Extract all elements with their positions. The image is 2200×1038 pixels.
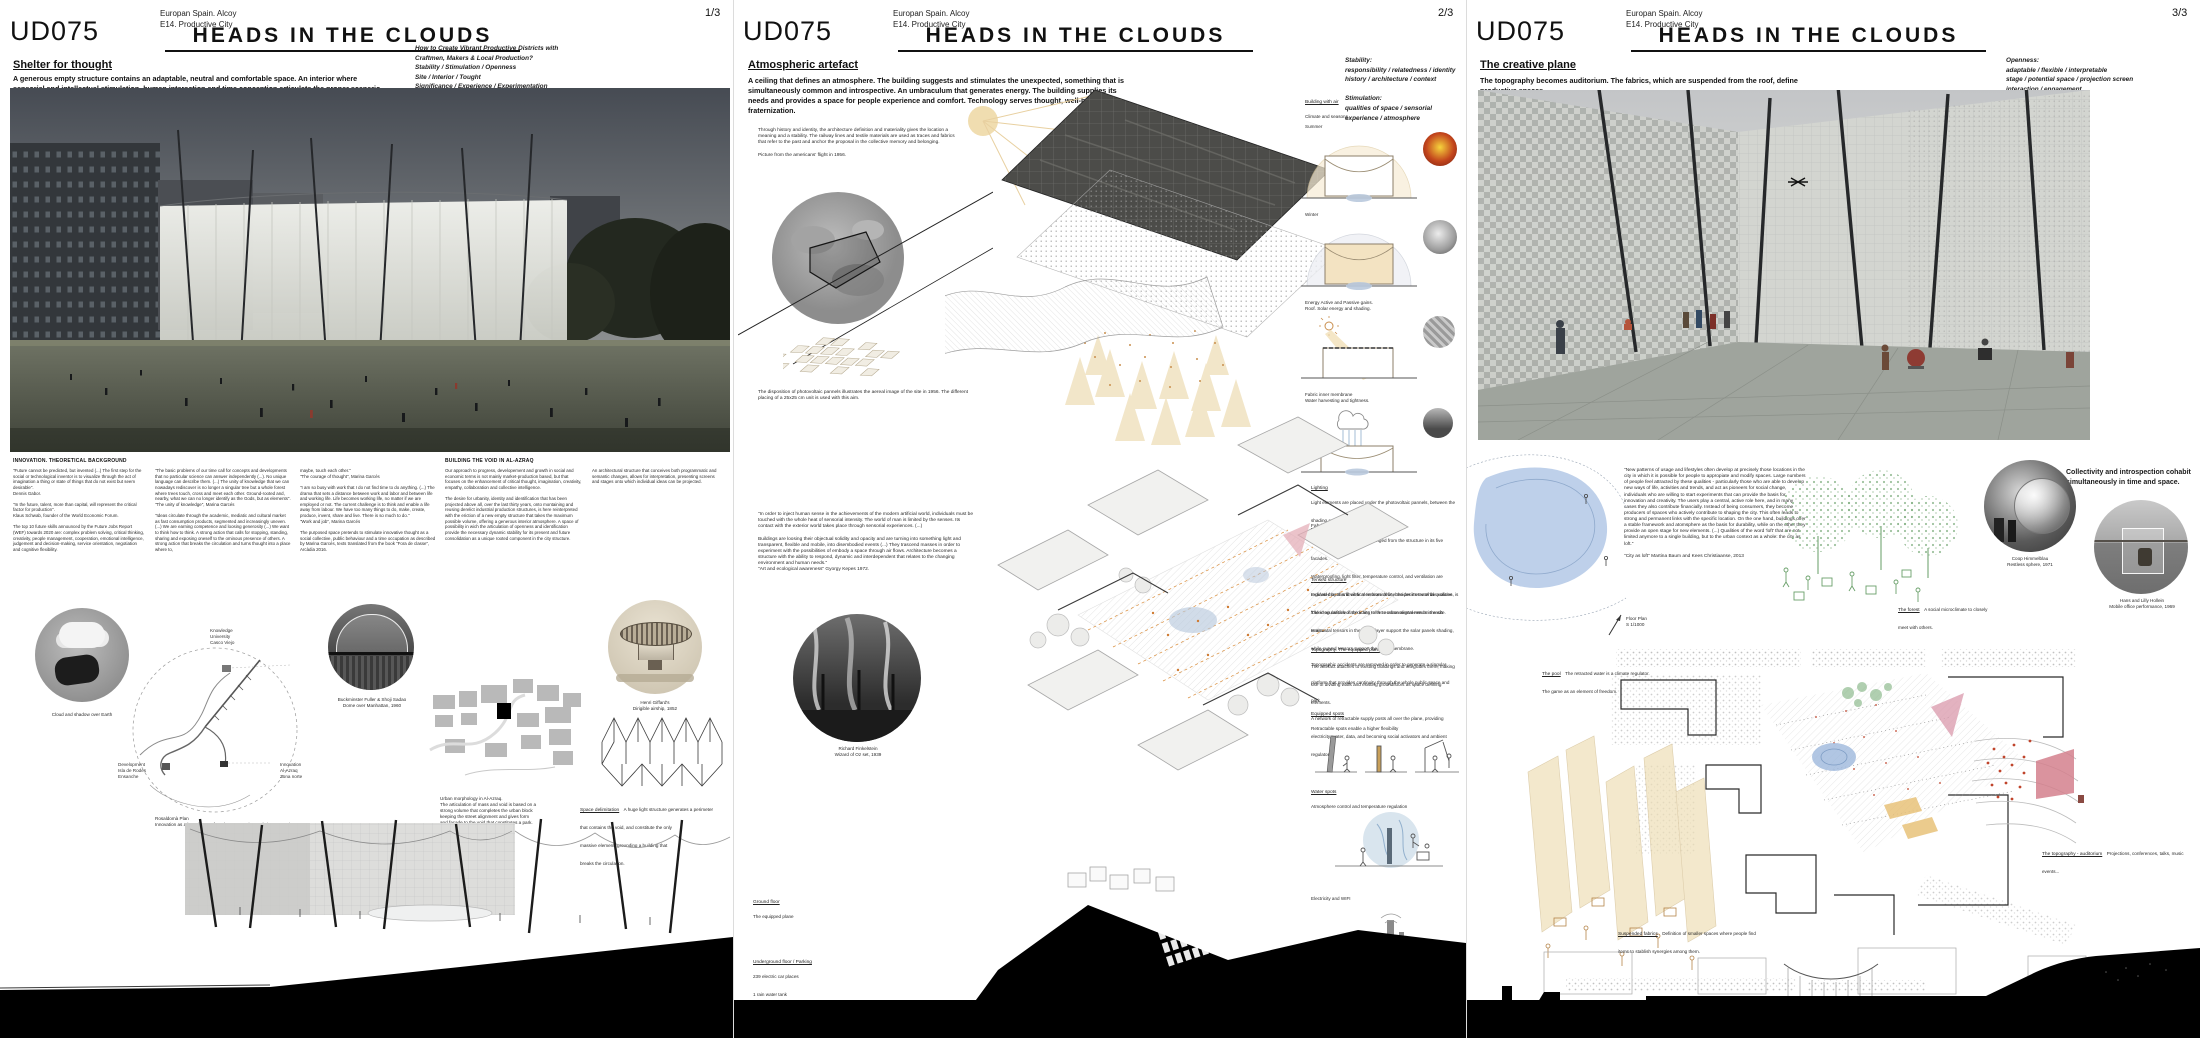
panel-1: Europan Spain. Alcoy E14. Productive Cit… [0,0,733,1038]
column-heading: INNOVATION. THEORETICAL BACKGROUND [13,458,145,464]
floor-plan-label: Floor Plan S 1/1000 [1626,616,1647,628]
panel-subtitle: Atmospheric artefact [748,59,858,71]
ground-floor-label: Ground floor The equipped plane [753,900,903,923]
team-code: UD075 [743,16,832,47]
city-strategy-map [110,635,320,815]
underground-floor-label: Underground floor / Parking 239 electric… [753,960,903,1001]
page-number: 1/3 [705,7,720,19]
plaza-render-image [1478,90,2090,440]
theory-column-1: INNOVATION. THEORETICAL BACKGROUND "Futu… [13,458,145,552]
panel-subtitle: The creative plane [1480,59,1576,71]
north-arrow-icon [1606,612,1624,638]
urban-morphology-map [425,655,590,795]
caption-head: Space delimitation [580,808,619,813]
pv-tiles-diagram [783,330,953,392]
page-number: 3/3 [2172,7,2187,19]
winter-label: Winter [1305,212,1318,218]
map-label-development: Development Isla de Rodes Ensanche [118,762,146,780]
theory-column-3: maybe, touch each other." "The courage o… [300,468,436,552]
theory-column-2: "The basic problems of our time call for… [155,468,291,552]
team-code: UD075 [1476,16,1565,47]
head: Building with air [1305,100,1348,105]
page-number: 2/3 [1438,7,1453,19]
collectivity-note: Collectivity and introspection cohabit s… [2066,468,2196,488]
panel-title: HEADS IN THE CLOUDS [898,24,1253,52]
head: Suspended fabrics [1618,932,1658,937]
pv-caption: The disposition of photovoltaic pannels … [758,390,968,402]
map-label-innovation: Innovation Al-Azraq Zona norte [280,762,302,780]
theory-column-5: An architectural structure that conceive… [592,468,722,485]
map-label-knowledge: Knowledge University Casco Viejo [210,628,234,646]
panel-title: HEADS IN THE CLOUDS [1631,24,1986,52]
moon-photo [1423,220,1457,254]
dome-manhattan-photo [328,604,414,690]
oz-set-caption: Richard Finkelstein Wizard of Oz set, 19… [803,746,913,758]
head: The forest [1898,608,1920,613]
sub: Climate and seasons [1305,114,1348,119]
dusk-render-image [10,88,730,452]
column-heading: BUILDING THE VOID IN AL-AZRAQ [445,458,583,464]
mobile-office-caption: Hans and Lilly Hollein Mobile office per… [2084,598,2200,610]
mobile-office-photo [2094,500,2188,594]
restless-sphere-caption: Coop Himmelblau Restless sphere, 1971 [1978,556,2082,568]
solar-panel-photo [1423,316,1455,348]
space-delimitation-diagram [592,712,732,794]
brief-note: Openness: adaptable / flexible / interpr… [2006,56,2191,94]
summer-diagram [1301,132,1417,206]
head: The topography - auditorium [2042,852,2102,857]
head: Ground floor [753,900,903,905]
brief-note: How to Create Vibrant Productive Distric… [415,44,600,92]
text: Collectivity and introspection cohabit s… [2066,469,2191,486]
panel-subtitle: Shelter for thought [13,59,112,71]
winter-diagram [1301,220,1417,294]
auditorium-caption: The topography - auditorium Projections,… [2042,842,2197,878]
building-with-air-head: Building with air Climate and seasons [1305,100,1348,123]
brief-note: Stability: responsibility / relatedness … [1345,56,1465,123]
summer-label: Summer [1305,124,1322,130]
forest-caption: The forest A social microclimate to clos… [1898,598,2028,634]
restless-sphere-photo [1984,460,2076,552]
column-text: "Future cannot be predicted, but invente… [13,468,145,552]
body: The equipped plane [753,914,794,919]
panel-seam [1466,0,1467,1038]
head: The pool [1542,672,1561,677]
panel-2: Europan Spain. Alcoy E14. Productive Cit… [733,0,1466,1038]
panel-seam [733,0,734,1038]
panel-3: Europan Spain. Alcoy E14. Productive Cit… [1466,0,2200,1038]
dirigible-caption: Henri Giffard's Dirigible airship, 1852 [610,700,700,712]
body: 239 electric car places 1 rain water tan… [753,974,799,997]
oz-set-photo [793,614,921,742]
dome-manhattan-caption: Buckminster Fuller & Shoji Sadao Dome ov… [312,697,432,709]
forest-vignette [1756,466,1971,616]
competition-board: Europan Spain. Alcoy E14. Productive Cit… [0,0,2200,1038]
dirigible-photo [608,600,702,694]
team-code: UD075 [10,16,99,47]
sun-photo [1423,132,1457,166]
theory-column-4: BUILDING THE VOID IN AL-AZRAQ Our approa… [445,458,583,541]
energy-diagram [1301,316,1417,386]
energy-label: Energy Active and Passive gains. Roof. S… [1305,300,1373,312]
column-text: Our approach to progress, developement a… [445,468,583,541]
board-footer-band [0,1000,2200,1038]
masterplan-axonometry [938,385,1466,1038]
head: Underground floor / Parking [753,960,903,965]
